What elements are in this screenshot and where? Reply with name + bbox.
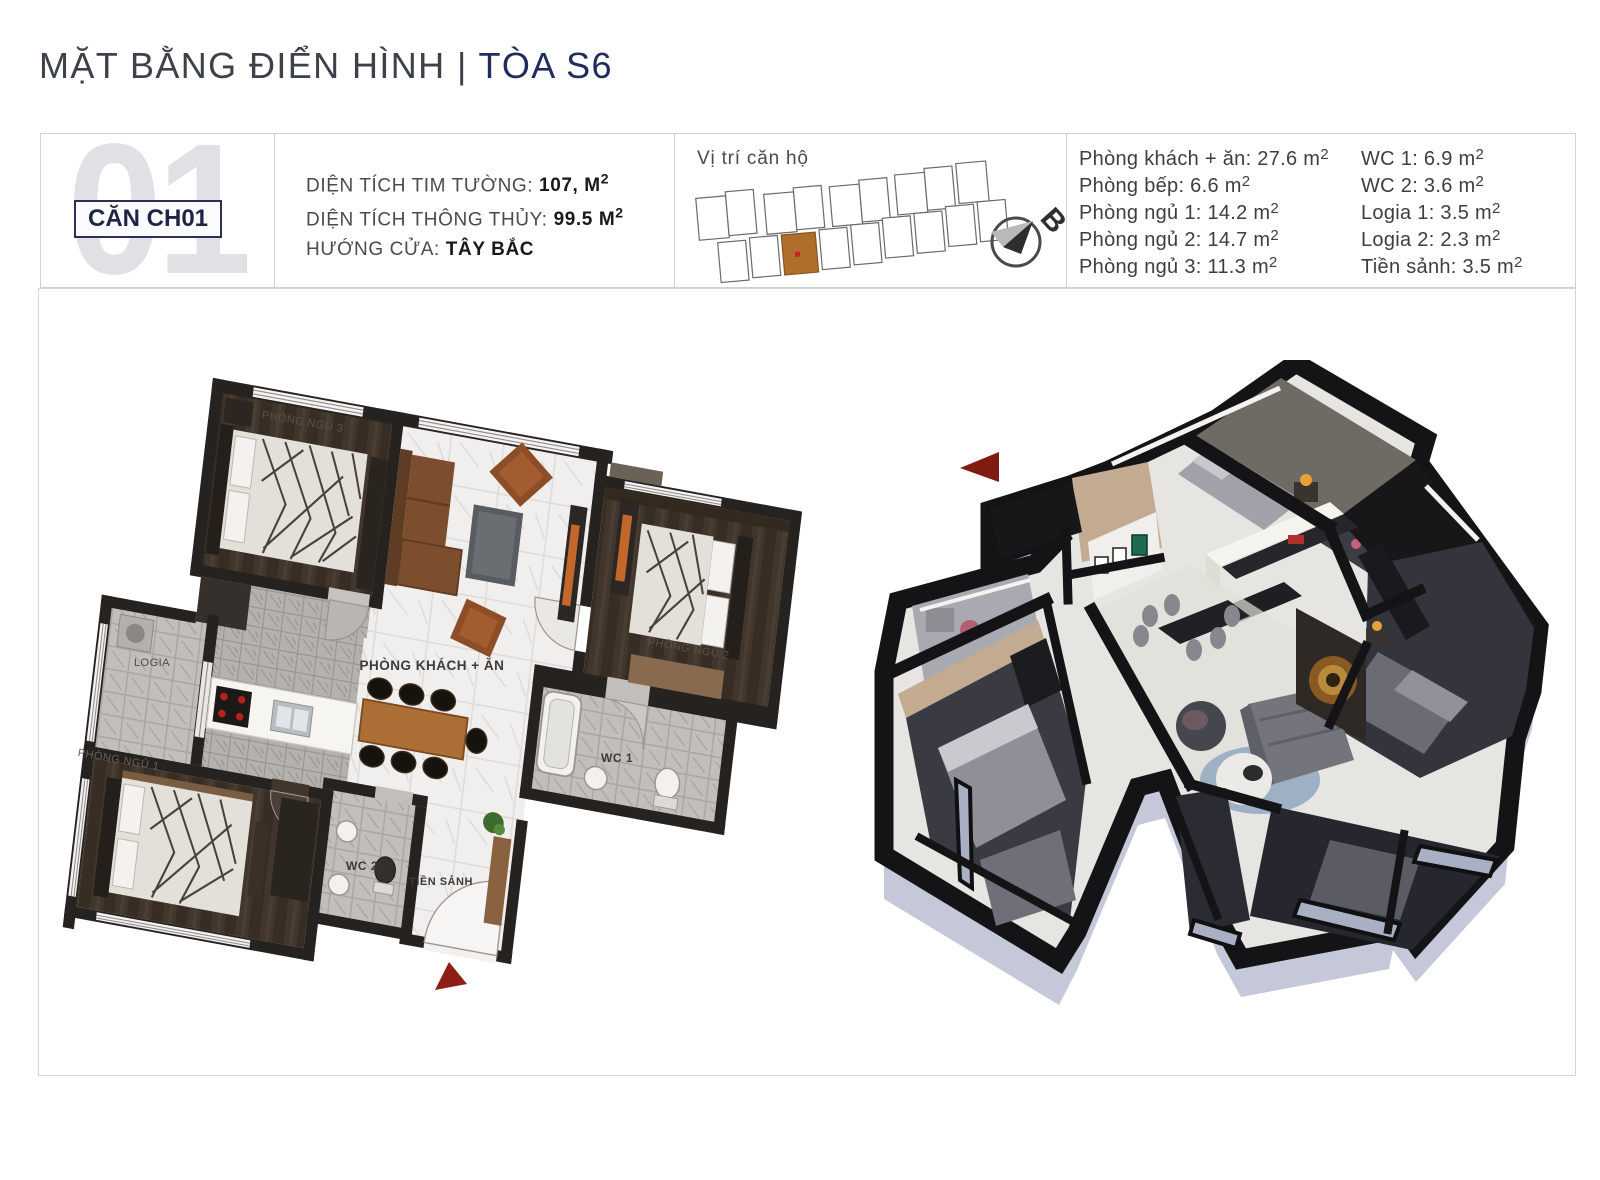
- svg-text:TIỀN SẢNH: TIỀN SẢNH: [409, 875, 473, 888]
- svg-text:WC 2: WC 2: [346, 859, 378, 873]
- svg-text:WC 1: WC 1: [601, 751, 633, 765]
- svg-text:LOGIA: LOGIA: [134, 657, 170, 669]
- svg-text:PHÒNG KHÁCH + ĂN: PHÒNG KHÁCH + ĂN: [360, 658, 505, 673]
